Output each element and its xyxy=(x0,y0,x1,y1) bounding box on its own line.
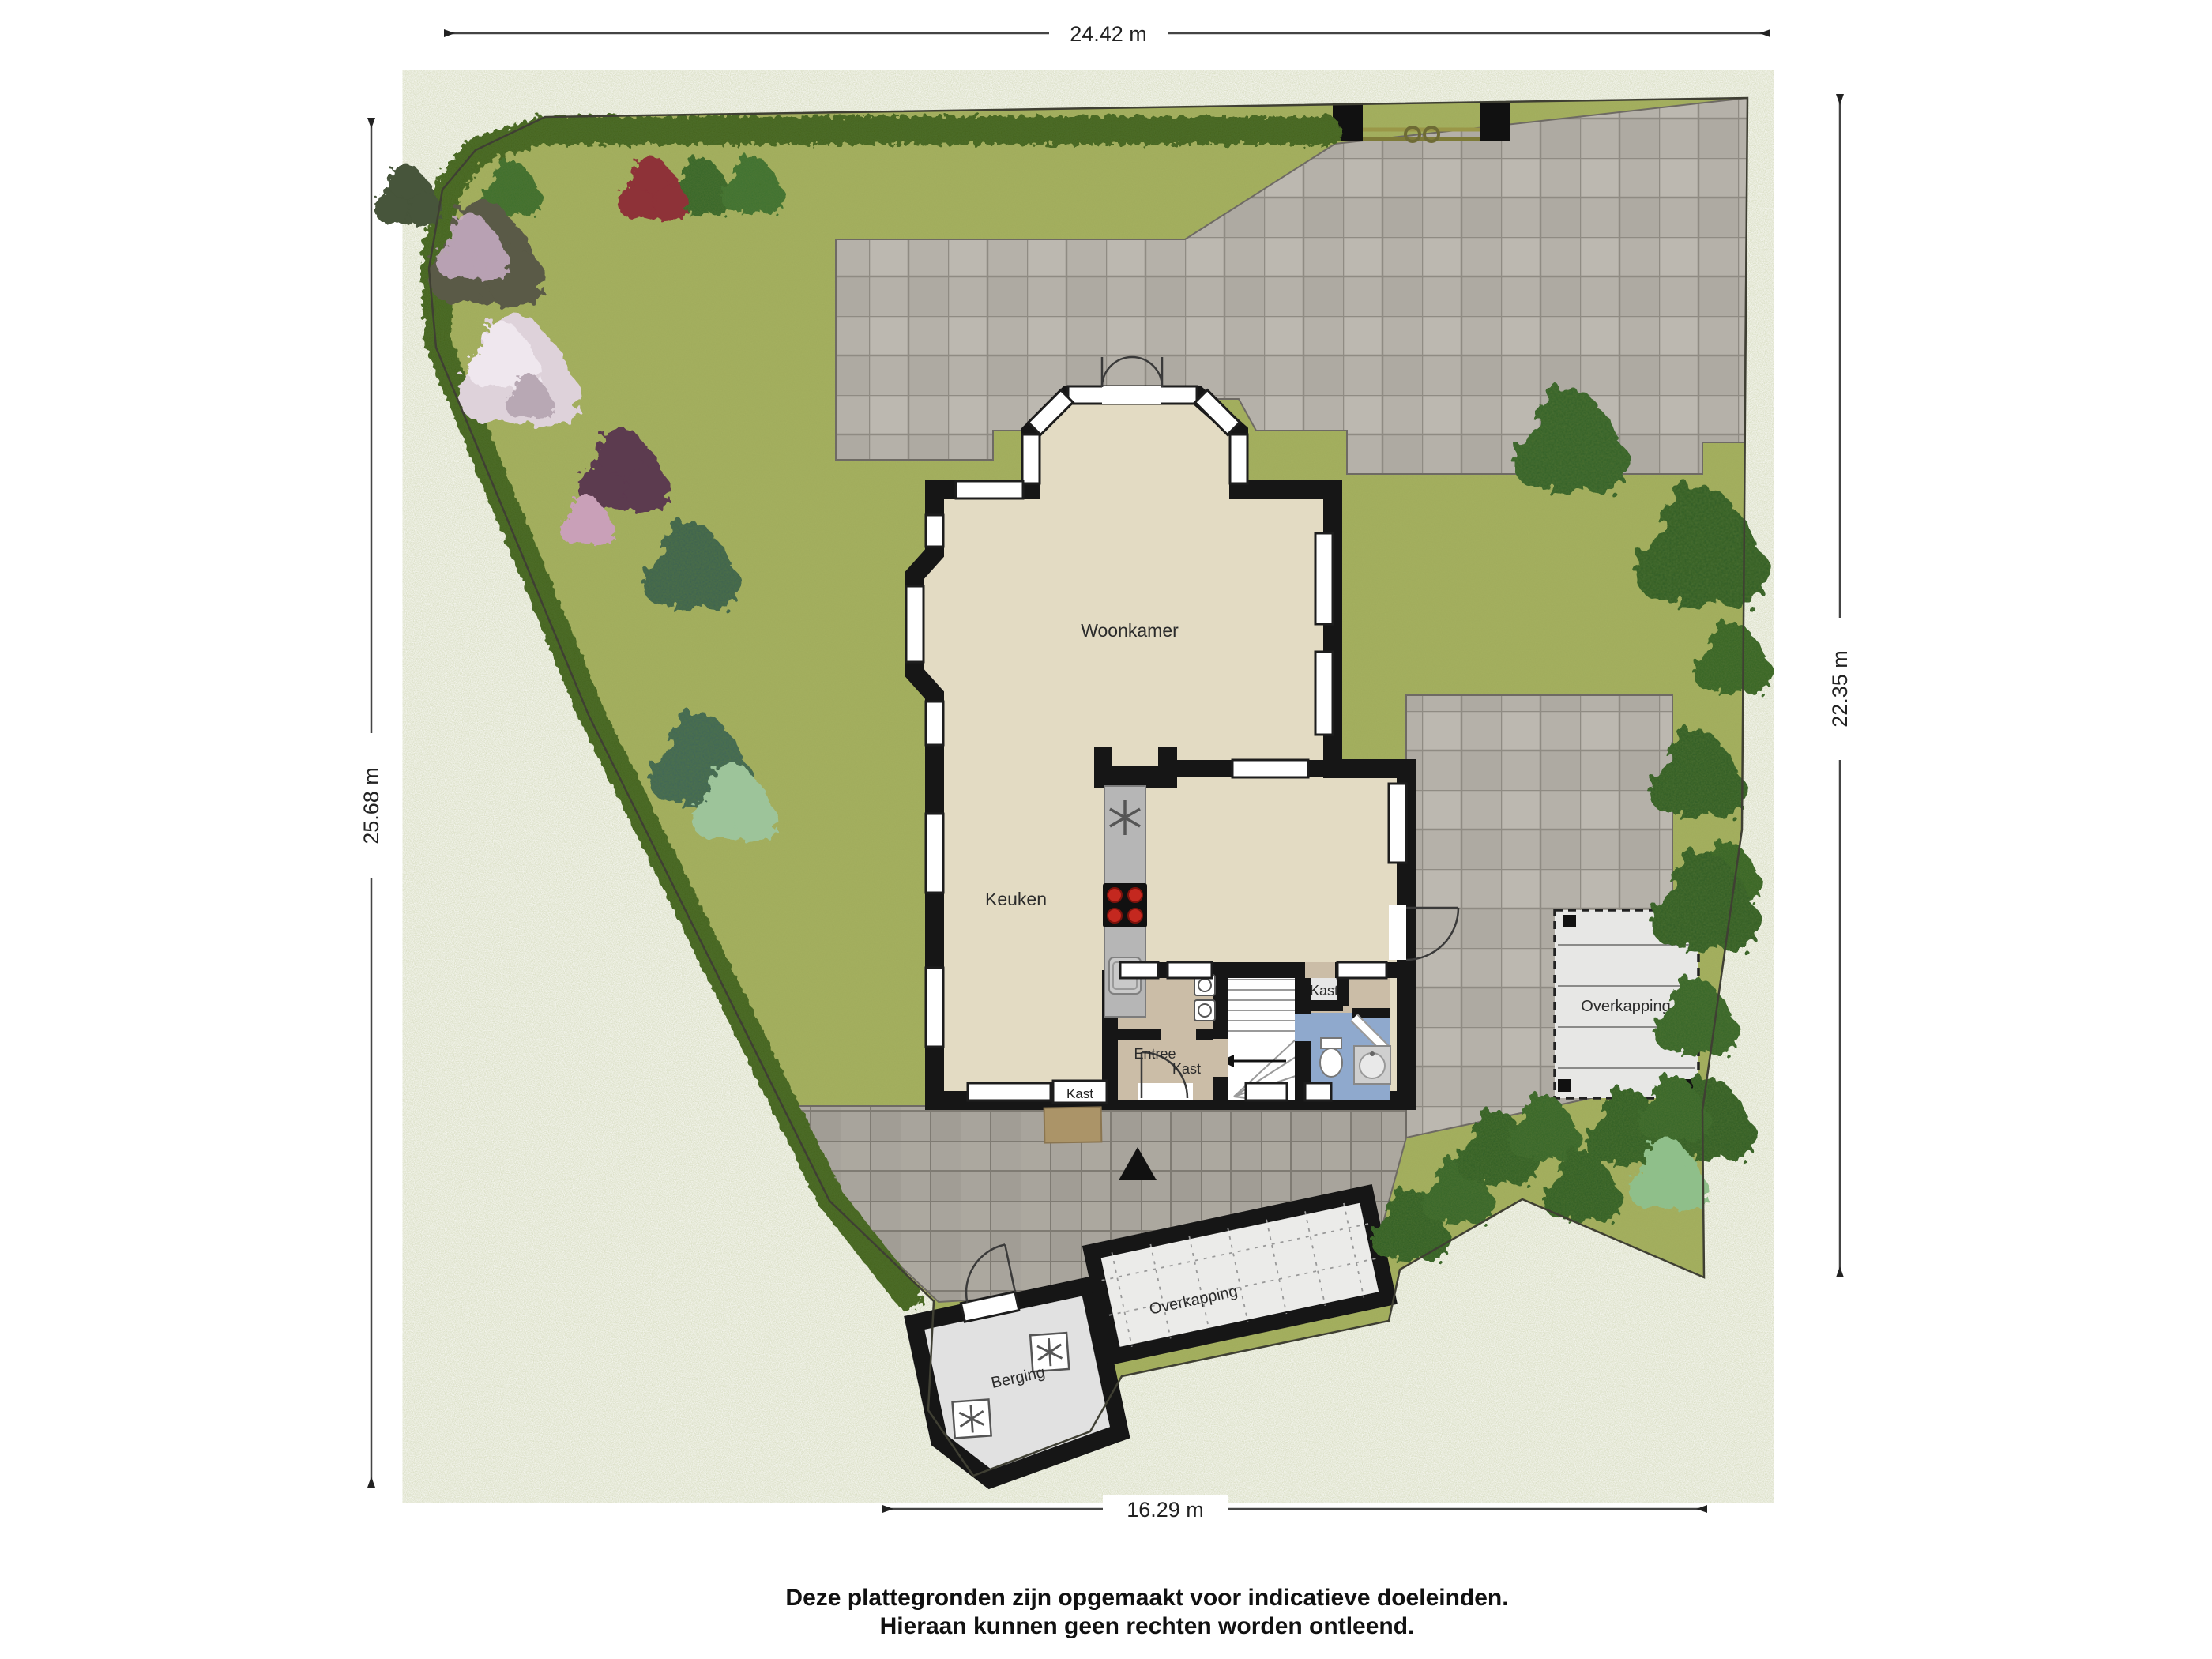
hob-icon xyxy=(1103,883,1147,927)
skylight-icon xyxy=(953,1399,991,1438)
dimension-right: 22.35 m xyxy=(1824,95,1856,1277)
room-label-kast-room: Kast xyxy=(1310,983,1338,999)
disclaimer-line-1: Deze plattegronden zijn opgemaakt voor i… xyxy=(785,1585,1508,1611)
doormat xyxy=(1044,1107,1102,1142)
washbasin-icon xyxy=(1354,1046,1390,1084)
room-label-woonkamer: Woonkamer xyxy=(1081,620,1179,641)
room-label-keuken: Keuken xyxy=(985,889,1047,909)
room-label-kast-wall: Kast xyxy=(1066,1086,1093,1101)
canopy-post xyxy=(1563,915,1576,927)
shrub xyxy=(374,164,442,226)
dimension-bottom: 16.29 m xyxy=(883,1495,1706,1522)
kast-in-wall: Kast xyxy=(1053,1081,1107,1103)
toilet-icon xyxy=(1320,1038,1342,1077)
room-label-kast-understairs: Kast xyxy=(1172,1061,1201,1077)
room-label-entree: Entree xyxy=(1134,1046,1176,1062)
room-label-overkapping-right: Overkapping xyxy=(1581,998,1670,1015)
floorplan-page: Overkapping xyxy=(0,0,2212,1659)
gate-post xyxy=(1480,103,1510,141)
dimension-top-label: 24.42 m xyxy=(1070,22,1147,46)
canopy-post xyxy=(1558,1079,1571,1092)
site-plan-svg: Overkapping xyxy=(0,0,2212,1659)
kitchen-island xyxy=(1103,786,1147,1017)
dimension-top: 24.42 m xyxy=(445,19,1770,46)
dimension-right-label: 22.35 m xyxy=(1828,650,1852,728)
dimension-left-label: 25.68 m xyxy=(359,767,383,845)
dimension-left: 25.68 m xyxy=(355,118,387,1487)
disclaimer-line-2: Hieraan kunnen geen rechten worden ontle… xyxy=(880,1613,1415,1639)
dimension-bottom-label: 16.29 m xyxy=(1127,1498,1204,1522)
